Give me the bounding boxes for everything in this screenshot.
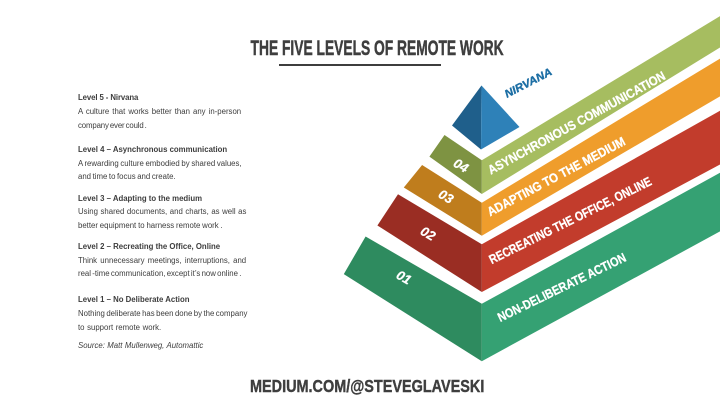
svg-text:NIRVANA: NIRVANA [503,66,554,101]
